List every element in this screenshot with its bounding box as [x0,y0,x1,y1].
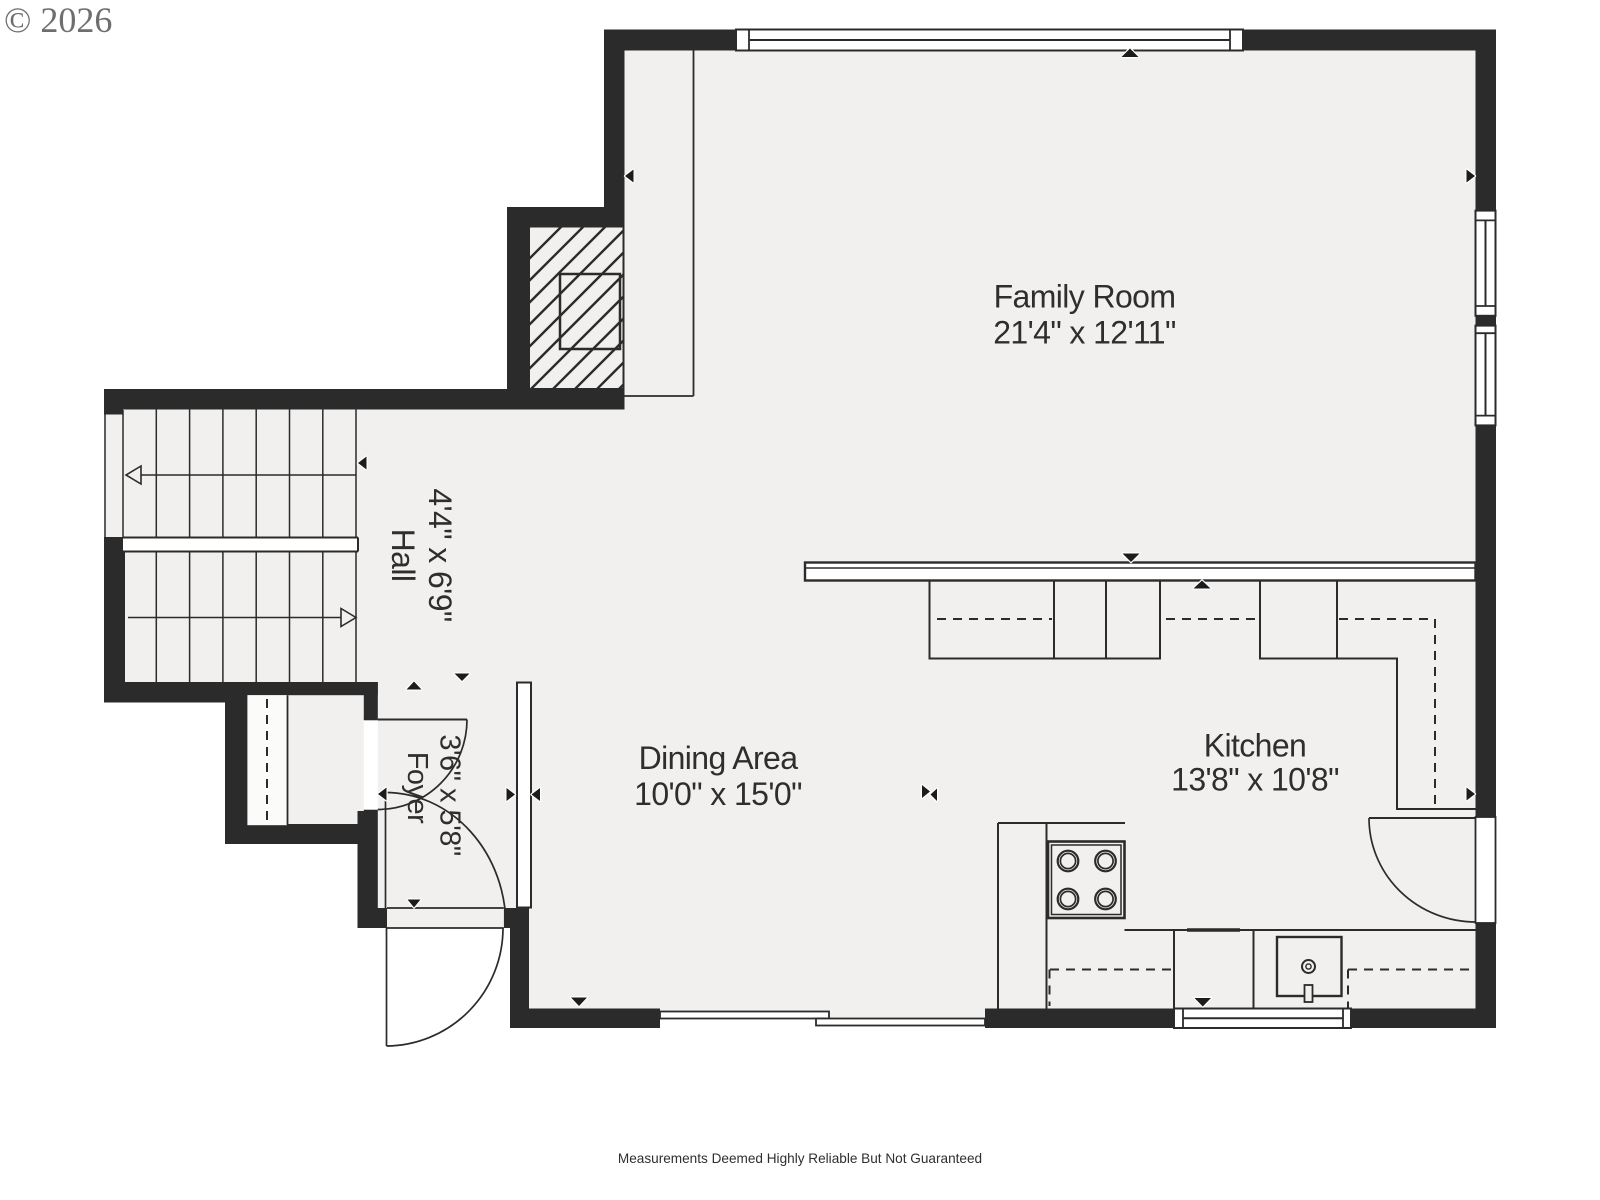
svg-text:4'4" x 6'9": 4'4" x 6'9" [422,488,458,621]
svg-text:© 2026: © 2026 [4,0,112,40]
svg-text:Kitchen: Kitchen [1204,728,1307,764]
svg-text:21'4" x 12'11": 21'4" x 12'11" [993,315,1176,351]
svg-text:Family Room: Family Room [994,279,1176,315]
svg-text:10'0" x 15'0": 10'0" x 15'0" [634,776,802,812]
svg-text:Measurements Deemed Highly Rel: Measurements Deemed Highly Reliable But … [618,1151,982,1166]
svg-text:3'6" x 5'8": 3'6" x 5'8" [433,734,465,855]
svg-text:13'8" x 10'8": 13'8" x 10'8" [1171,762,1339,798]
svg-text:Dining Area: Dining Area [639,740,799,776]
svg-text:Hall: Hall [385,529,421,582]
svg-text:Foyer: Foyer [401,752,433,824]
